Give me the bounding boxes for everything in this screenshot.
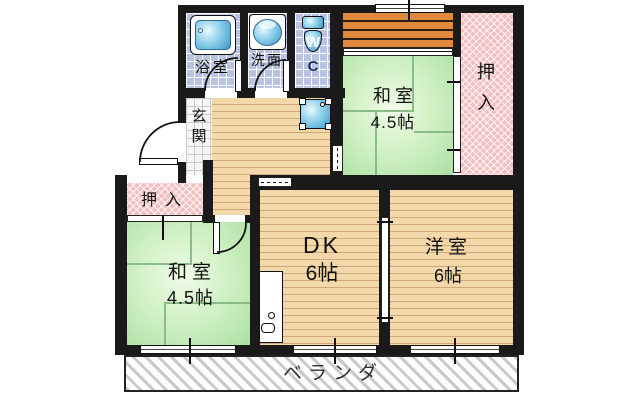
washing-machine-faucet bbox=[320, 102, 325, 107]
bathroom-label: 浴室 bbox=[189, 58, 237, 78]
tatami-seam bbox=[190, 222, 192, 265]
closet-right-label: 押 入 bbox=[471, 57, 501, 118]
toilet-tank bbox=[302, 16, 324, 29]
entrance-door-arc bbox=[140, 122, 180, 162]
washroom-label: 洗面 bbox=[245, 51, 289, 70]
wash-basin-rim bbox=[259, 20, 276, 29]
wall-left-upper bbox=[178, 5, 186, 123]
entrance-label: 玄 関 bbox=[189, 107, 209, 148]
washing-machine-corner bbox=[325, 123, 332, 130]
fusuma-closet-left bbox=[127, 215, 203, 222]
door-tick bbox=[447, 81, 461, 83]
door-tick bbox=[377, 221, 393, 223]
japanese-room-bottom-size: 4.5帖 bbox=[143, 286, 238, 310]
closet-left-label: 押入 bbox=[133, 190, 197, 212]
toilet-label-w: W bbox=[303, 33, 323, 53]
washing-machine-corner bbox=[299, 98, 306, 105]
wall-deck-closet-divider bbox=[453, 13, 461, 56]
hallway-floor-arm bbox=[213, 175, 250, 215]
dk-label: DK bbox=[287, 230, 357, 261]
entrance-door-leaf bbox=[139, 158, 178, 165]
veranda-label: ベランダ bbox=[248, 361, 418, 387]
japanese-room-top-size: 4.5帖 bbox=[348, 112, 438, 135]
wall-top bbox=[178, 5, 524, 13]
wall-left-upper bbox=[178, 162, 186, 183]
window-tick bbox=[408, 0, 410, 20]
deck-sill bbox=[343, 48, 453, 56]
toilet-label-c: C bbox=[303, 57, 323, 77]
western-room-label: 洋室 bbox=[410, 235, 486, 261]
wall-bath-bottom bbox=[178, 88, 205, 98]
wall-left-lower bbox=[115, 175, 127, 355]
window-japanese-room-bottom bbox=[140, 345, 236, 354]
window-tick bbox=[454, 338, 456, 364]
window-top bbox=[375, 4, 445, 13]
door-tick bbox=[377, 317, 393, 319]
bathtub-drain bbox=[198, 28, 203, 33]
door-tick bbox=[447, 149, 461, 151]
washing-machine-corner bbox=[299, 123, 306, 130]
western-room-size: 6帖 bbox=[418, 264, 478, 288]
japanese-room-bottom-door-leaf bbox=[213, 222, 220, 254]
window-tick bbox=[189, 338, 191, 364]
washing-machine-corner bbox=[325, 98, 332, 105]
japanese-room-top-label: 和室 bbox=[353, 84, 437, 108]
japanese-room-bottom-label: 和室 bbox=[147, 260, 237, 286]
floor-plan: 浴室 洗面 W C 玄 関 押入 押 入 和室 4.5帖 和室 4.5帖 DK … bbox=[0, 0, 640, 400]
sliding-door-dk bbox=[258, 177, 292, 187]
dk-size: 6帖 bbox=[292, 260, 352, 288]
bathtub-water bbox=[195, 20, 231, 50]
wall-japanese-room-bottom-top bbox=[245, 215, 250, 223]
sliding-door-japanese-room-top bbox=[332, 145, 343, 172]
kitchen-sink-basin bbox=[261, 323, 275, 333]
fusuma-closet-right bbox=[453, 56, 461, 173]
wall-hall-closet-divider bbox=[203, 160, 213, 223]
door-tick bbox=[162, 215, 164, 240]
kitchen-faucet bbox=[268, 312, 275, 319]
wood-deck bbox=[343, 13, 453, 48]
sliding-door-dk-western bbox=[381, 217, 389, 323]
